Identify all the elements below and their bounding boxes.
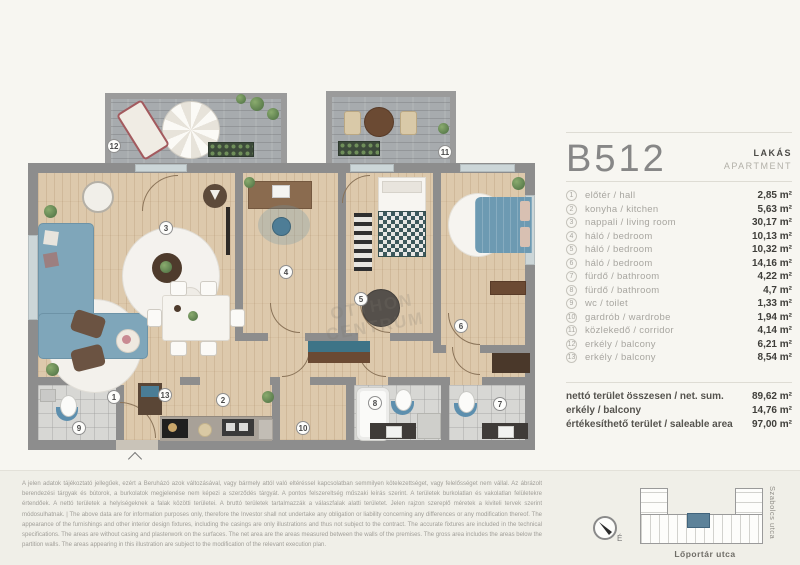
- toilet: [60, 395, 77, 417]
- plan-room-number-13: 13: [158, 388, 172, 402]
- totals: nettó terület összesen / net. sum. 89,62…: [566, 389, 792, 431]
- legend-room-name: konyha / kitchen: [585, 204, 758, 215]
- unit-title: B512: [566, 138, 667, 181]
- street-label-bottom: Lőportár utca: [650, 549, 760, 559]
- table-plant: [188, 311, 198, 321]
- unit-type-hu: LAKÁS: [652, 148, 792, 158]
- legend-number: 10: [566, 312, 577, 323]
- bed-pillow: [520, 227, 530, 247]
- total-label: erkély / balcony: [566, 405, 752, 416]
- legend-room-name: háló / bedroom: [585, 231, 752, 242]
- flower-vase: [122, 335, 131, 344]
- table-bowl: [174, 305, 181, 312]
- legend-room-name: wc / toilet: [585, 298, 758, 309]
- legend-row-11: 11közlekedő / corridor4,14 m²: [566, 324, 792, 338]
- striped-rug: [354, 213, 372, 271]
- legend-row-9: 9wc / toilet1,33 m²: [566, 297, 792, 311]
- legend-room-area: 8,54 m²: [758, 352, 792, 363]
- legend-row-12: 12erkély / balcony6,21 m²: [566, 338, 792, 352]
- dining-chair: [170, 341, 187, 356]
- plant-pot: [44, 205, 57, 218]
- legend-room-area: 30,17 m²: [752, 217, 792, 228]
- legend-row-3: 3nappali / living room30,17 m²: [566, 216, 792, 230]
- legend-room-area: 4,7 m²: [763, 285, 792, 296]
- legend-number: 2: [566, 204, 577, 215]
- apartment-datasheet-page: OTTHON CENTRUM 12345678910111213 B512 LA…: [0, 0, 800, 565]
- legend-number: 3: [566, 217, 577, 228]
- legend-room-area: 6,21 m²: [758, 339, 792, 350]
- plant-pot: [267, 108, 279, 120]
- wall: [235, 333, 268, 341]
- legend-room-area: 2,85 m²: [758, 190, 792, 201]
- plant-pot: [250, 97, 264, 111]
- legend-number: 12: [566, 339, 577, 350]
- legend-room-name: fürdő / bathroom: [585, 285, 763, 296]
- wc-shelf: [40, 389, 56, 402]
- plant-pot: [262, 391, 274, 403]
- legend-room-area: 1,94 m²: [758, 312, 792, 323]
- plan-room-number-11: 11: [438, 145, 452, 159]
- round-table: [82, 181, 114, 213]
- legend-room-area: 14,16 m²: [752, 258, 792, 269]
- plan-room-number-1: 1: [107, 390, 121, 404]
- dining-chair: [230, 309, 245, 327]
- wall: [482, 377, 525, 385]
- unit-type-en: APARTMENT: [652, 161, 792, 171]
- total-row-net: nettó terület összesen / net. sum. 89,62…: [566, 389, 792, 403]
- legend-row-5: 5háló / bedroom10,32 m²: [566, 243, 792, 257]
- wall: [310, 377, 356, 385]
- legend-number: 1: [566, 190, 577, 201]
- wardrobe: [492, 353, 530, 373]
- total-value: 97,00 m²: [752, 419, 792, 430]
- console-tray: [141, 386, 159, 397]
- planter-box: [338, 141, 380, 156]
- bistro-table: [364, 107, 394, 137]
- plan-room-number-12: 12: [107, 139, 121, 153]
- wall: [433, 345, 446, 353]
- fridge: [258, 419, 273, 440]
- site-plan: É Szabolcs utca Lőportár utca: [560, 472, 800, 565]
- plant-pot: [244, 177, 255, 188]
- toilet: [395, 389, 412, 411]
- legend-row-8: 8fürdő / bathroom4,7 m²: [566, 284, 792, 298]
- wall: [270, 377, 280, 385]
- legend-room-area: 10,32 m²: [752, 244, 792, 255]
- plan-room-number-6: 6: [454, 319, 468, 333]
- plant-pot: [438, 123, 449, 134]
- floor-plan: OTTHON CENTRUM 12345678910111213: [20, 85, 545, 470]
- wall: [441, 385, 449, 440]
- legend-room-name: fürdő / bathroom: [585, 271, 758, 282]
- sofa-pillow: [43, 252, 59, 268]
- legend-room-name: nappali / living room: [585, 217, 752, 228]
- desk-chair: [272, 217, 291, 236]
- window: [28, 235, 38, 320]
- legend-number: 6: [566, 258, 577, 269]
- legend-room-name: háló / bedroom: [585, 258, 752, 269]
- toilet: [458, 391, 475, 413]
- legend-number: 5: [566, 244, 577, 255]
- plan-room-number-7: 7: [493, 397, 507, 411]
- legend-number: 11: [566, 325, 577, 336]
- cooktop-pan: [168, 423, 177, 432]
- legend-room-name: közlekedő / corridor: [585, 325, 758, 336]
- divider: [566, 132, 792, 133]
- legend-number: 8: [566, 285, 577, 296]
- legend-row-2: 2konyha / kitchen5,63 m²: [566, 203, 792, 217]
- total-label: értékesíthető terület / saleable area: [566, 419, 752, 430]
- legend-row-4: 4háló / bedroom10,13 m²: [566, 230, 792, 244]
- compass-label: É: [617, 534, 622, 543]
- legend-number: 13: [566, 352, 577, 363]
- entrance-marker: [128, 452, 142, 466]
- legend-room-name: erkély / balcony: [585, 352, 758, 363]
- wall: [180, 377, 200, 385]
- washbasin: [498, 426, 514, 438]
- washbasin: [386, 426, 402, 438]
- total-value: 14,76 m²: [752, 405, 792, 416]
- planter-box: [208, 142, 254, 157]
- balcony-door-window: [135, 164, 187, 172]
- legend-row-1: 1előtér / hall2,85 m²: [566, 189, 792, 203]
- highlighted-unit: [687, 513, 710, 528]
- plate: [198, 423, 212, 437]
- legend-number: 9: [566, 298, 577, 309]
- street-label-right: Szabolcs utca: [768, 486, 777, 548]
- plant-pot: [236, 94, 246, 104]
- total-label: nettó terület összesen / net. sum.: [566, 391, 752, 402]
- total-row-saleable: értékesíthető terület / saleable area 97…: [566, 417, 792, 431]
- wall: [480, 345, 535, 353]
- legend-number: 7: [566, 271, 577, 282]
- legend-room-area: 1,33 m²: [758, 298, 792, 309]
- wall: [346, 385, 354, 440]
- legend-row-13: 13erkély / balcony8,54 m²: [566, 351, 792, 365]
- legend-row-10: 10gardrób / wardrobe1,94 m²: [566, 311, 792, 325]
- legend-row-6: 6háló / bedroom14,16 m²: [566, 257, 792, 271]
- tv: [226, 207, 230, 255]
- bed-pillow: [382, 181, 422, 193]
- legend-room-name: gardrób / wardrobe: [585, 312, 758, 323]
- room-list: 1előtér / hall2,85 m²2konyha / kitchen5,…: [566, 189, 792, 365]
- legend-room-area: 4,22 m²: [758, 271, 792, 282]
- entrance-door: [116, 440, 158, 450]
- balcony-door-window: [350, 164, 394, 172]
- plan-room-number-9: 9: [72, 421, 86, 435]
- legend-room-name: előtér / hall: [585, 190, 758, 201]
- plan-room-number-2: 2: [216, 393, 230, 407]
- legend-room-area: 5,63 m²: [758, 204, 792, 215]
- dining-chair: [170, 281, 187, 296]
- legend-number: 4: [566, 231, 577, 242]
- sink-basin: [239, 423, 248, 431]
- sofa-pillow: [43, 230, 59, 246]
- divider: [566, 181, 792, 182]
- plan-room-number-8: 8: [368, 396, 382, 410]
- plant-pot: [512, 177, 525, 190]
- legend-room-name: háló / bedroom: [585, 244, 752, 255]
- wall: [388, 377, 450, 385]
- legend-room-name: erkély / balcony: [585, 339, 758, 350]
- legend-room-area: 4,14 m²: [758, 325, 792, 336]
- bench: [490, 281, 526, 295]
- sink-basin: [226, 423, 235, 431]
- bed-pillow: [520, 201, 530, 221]
- plan-room-number-5: 5: [354, 292, 368, 306]
- laptop: [272, 185, 290, 198]
- divider: [566, 382, 792, 383]
- total-value: 89,62 m²: [752, 391, 792, 402]
- total-row-balcony: erkély / balcony 14,76 m²: [566, 403, 792, 417]
- compass-icon: [593, 516, 617, 540]
- balcony-chair: [400, 111, 417, 135]
- balcony-chair: [344, 111, 361, 135]
- credenza: [308, 352, 370, 363]
- bed-blanket: [378, 211, 426, 257]
- plan-room-number-4: 4: [279, 265, 293, 279]
- disclaimer-text: A jelen adatok tájékoztató jellegűek, ez…: [22, 479, 542, 550]
- legend-room-area: 10,13 m²: [752, 231, 792, 242]
- dining-chair: [147, 309, 162, 327]
- window: [460, 164, 515, 172]
- plan-room-number-10: 10: [296, 421, 310, 435]
- dining-chair: [200, 281, 217, 296]
- table-plant: [160, 261, 172, 273]
- plant-pot: [46, 363, 59, 376]
- legend-row-7: 7fürdő / bathroom4,22 m²: [566, 270, 792, 284]
- shower-tray: [417, 413, 441, 439]
- dining-chair: [200, 341, 217, 356]
- plan-room-number-3: 3: [159, 221, 173, 235]
